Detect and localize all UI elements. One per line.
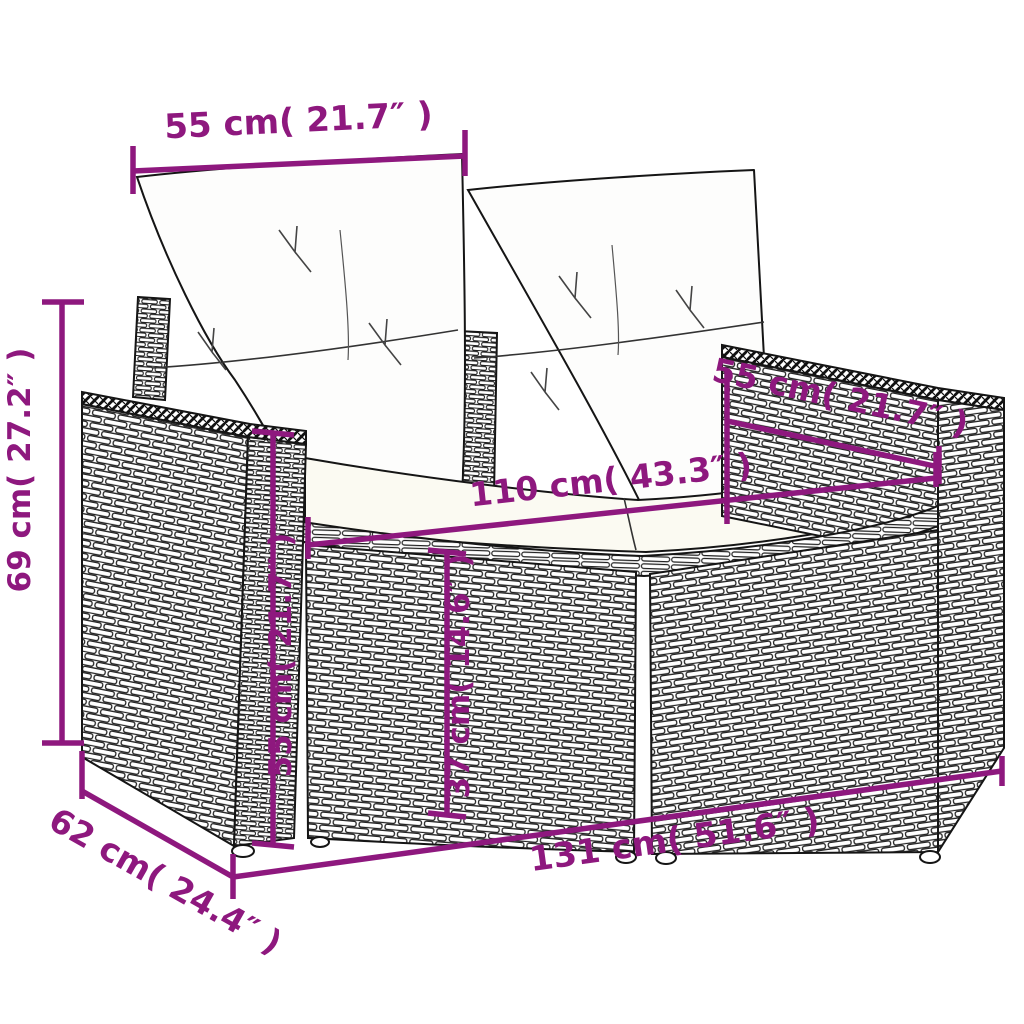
sofa-dimension-diagram: 55 cm( 21.7″ ) 69 cm( 27.2″ ) 55 cm( 21.… — [0, 0, 1024, 1024]
foot — [311, 837, 329, 847]
sofa-illustration — [82, 154, 1004, 864]
back-post-left — [133, 297, 170, 400]
armrest-left-front — [82, 404, 248, 846]
dimension-diagram-canvas: 55 cm( 21.7″ ) 69 cm( 27.2″ ) 55 cm( 21.… — [0, 0, 1024, 1024]
dim-seat-height-label: 37 cm( 14.6″ ) — [441, 554, 477, 799]
dim-arm-height-label: 55 cm( 21.7″ ) — [263, 533, 299, 778]
dim-overall-height-label: 69 cm( 27.2″ ) — [2, 348, 38, 593]
dim-overall-height-line — [42, 302, 84, 743]
base-side-panel-right — [938, 400, 1004, 852]
dim-back-width-label: 55 cm( 21.7″ ) — [163, 95, 433, 148]
foot — [920, 851, 940, 863]
